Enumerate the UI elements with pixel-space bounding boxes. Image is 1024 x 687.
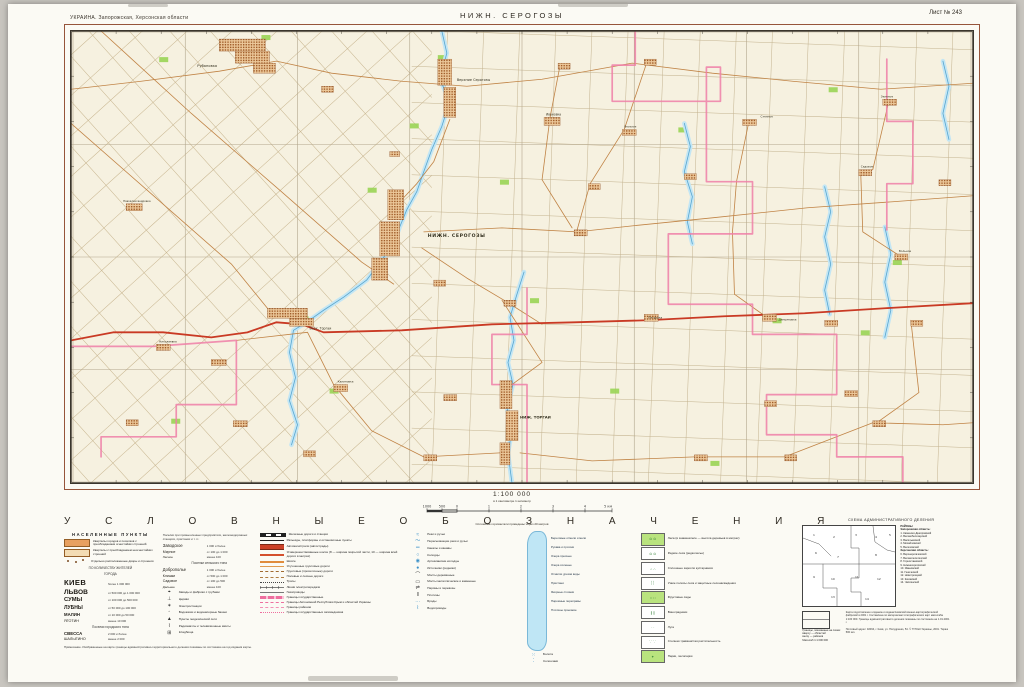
legend-name-sample: Лесноеменее 100	[163, 555, 256, 559]
legend-item: ⊥Церкви	[163, 597, 256, 602]
legend-symbol: ═	[411, 546, 424, 551]
legend-item-label: Виноградники	[668, 611, 799, 614]
svg-text:13: 13	[831, 595, 835, 599]
admin-scheme-map: 1234567891011121314	[802, 525, 896, 607]
legend-item: ✶Электростанции	[163, 604, 256, 609]
map-label: Новоалександровка	[123, 199, 151, 203]
legend-item: ◉Артезианские колодцы	[411, 559, 523, 564]
sheet-number: Лист № 243	[929, 10, 962, 16]
legend-item-label: Мосты металлические и каменные	[427, 580, 523, 583]
legend-subheader: Поселки городского типа	[64, 625, 157, 629]
legend-symbol: ▭	[411, 580, 424, 585]
legend-item-label: Реки и ручьи	[427, 533, 523, 536]
river-legend-label: Отметки урезов воды	[551, 573, 586, 576]
scale-bar-label: 2	[520, 504, 522, 508]
legend-swatch-blk-t	[64, 549, 90, 557]
legend-symbol: ⇌	[411, 586, 424, 591]
map-label: НИЖН. СЕРОГОЗЫ	[428, 233, 486, 239]
legend-item-label: Шоссе	[287, 560, 408, 563]
legend-item-label: Грунтовые (проселочные) дороги	[287, 570, 408, 573]
legend-item-label: Линии электропередачи	[287, 586, 408, 589]
legend-item-label: Кварталы с преобладанием неогнестойких с…	[93, 549, 157, 556]
river-legend-label: Озера пресные	[551, 555, 586, 558]
scale-bar-label: 0	[456, 504, 458, 508]
page-title: НИЖН. СЕРОГОЗЫ	[8, 11, 1016, 20]
legend-columns: НАСЕЛЕННЫЕ ПУНКТЫКварталы городов и посе…	[64, 516, 980, 666]
legend-name-sample: ЛЬВОВот 500 000 до 1 000 000	[64, 589, 157, 596]
svg-text:8: 8	[875, 553, 877, 557]
legend-swatch-rail2	[260, 540, 284, 541]
legend-item-label: Броды	[427, 600, 523, 603]
legend-item: ⌖Заводы и фабрики с трубами	[163, 590, 256, 595]
legend-item-label: Водопроводы	[427, 607, 523, 610]
legend-swatch-dots	[64, 558, 88, 564]
legend-swatch-bnd4	[260, 612, 284, 613]
legend-item-label: Степная травянистая растительность	[668, 640, 799, 643]
legend-item-label: Парки, лесопарки	[668, 655, 799, 658]
scale-bar-label: 1000	[423, 504, 432, 508]
map-label: Вольное	[899, 249, 912, 253]
svg-text:11: 11	[855, 575, 859, 579]
legend-item-label: Артезианские колодцы	[427, 560, 523, 563]
legend-item: Кварталы с преобладанием неогнестойких с…	[64, 549, 157, 557]
legend-symbol: ○	[411, 553, 424, 558]
svg-text:9: 9	[813, 575, 815, 579]
legend-symbol: ‖	[411, 593, 424, 598]
legend-item: Линии электропередачи	[260, 586, 408, 589]
legend-item-label: Усовершенствованные шоссе (8 — ширина по…	[287, 551, 408, 558]
scale-bar-label: 500	[439, 504, 445, 508]
legend-item-label: Редкие леса (редколесье)	[668, 552, 799, 555]
legend-item: ⌒Мосты деревянные	[411, 573, 523, 578]
river-sample	[527, 531, 547, 651]
legend-item-label: Каналы и канавы	[427, 547, 523, 550]
legend-symbol: ⁙	[527, 653, 540, 658]
svg-text:10: 10	[831, 577, 835, 581]
scan-artifact	[128, 4, 168, 7]
legend-item: ⸪ ⸪Степная травянистая растительность	[641, 636, 799, 649]
legend-symbol: ⋯	[411, 600, 424, 605]
legend-item: Границы государственных заповедников	[260, 611, 408, 614]
svg-text:12: 12	[877, 577, 881, 581]
scale-bar: 1000500012345 км	[407, 503, 617, 516]
map-scale: 1:100 000	[8, 491, 1016, 498]
legend-item: Грунтовые (проселочные) дороги	[260, 570, 408, 573]
legend-subheader: ГОРОДА	[64, 572, 157, 576]
map-label: Верх. Торгаи	[310, 326, 332, 330]
legend-name-sample: МАЛИНот 10 000 до 50 000	[64, 612, 157, 617]
legend-vegetation-box: ∙ ∙	[641, 621, 665, 634]
legend-item-label: Заводы и фабрики с трубами	[179, 591, 256, 594]
river-legend-label: Якорные стоянки	[551, 591, 586, 594]
legend-item-label: Границы государственные	[287, 596, 408, 599]
legend-item: ∴ ∴Сплошные заросли кустарников	[641, 562, 799, 575]
legend-swatch-rd-or-thin	[260, 566, 284, 567]
legend-swatch-bnd3	[260, 607, 284, 608]
scale-bar-label: 3	[552, 504, 554, 508]
svg-text:3: 3	[855, 533, 857, 537]
legend-item: Улучшенные грунтовые дороги	[260, 565, 408, 568]
legend-item: ▲Пункты геодезической сети	[163, 617, 256, 622]
svg-text:5: 5	[889, 533, 891, 537]
legend-item: ⊙ ⊙Леса (в знаменателе — высота деревьев…	[641, 533, 799, 546]
legend-name-sample: Заводское1 000 и более	[163, 543, 256, 548]
legend-symbol: ⌒	[411, 573, 424, 578]
legend-item: Усовершенствованные шоссе (8 — ширина по…	[260, 551, 408, 558]
map-sheet: УКРАИНА. Запорожская, Херсонская области…	[8, 4, 1016, 682]
legend-item-label: Железные дороги и станции	[289, 533, 408, 536]
legend-section-header: НАСЕЛЕННЫЕ ПУНКТЫ	[64, 532, 157, 537]
legend-item-label: Леса (в знаменателе — высота деревьев в …	[668, 537, 799, 540]
legend-item: ▭Мосты металлические и каменные	[411, 580, 523, 585]
legend-col-settlements: НАСЕЛЕННЫЕ ПУНКТЫКварталы городов и посе…	[64, 531, 256, 649]
legend-item: ○Колодцы	[411, 553, 523, 558]
legend-item-label: Солончаки	[543, 660, 637, 663]
map-label: Степное	[761, 114, 774, 118]
publication-note: Карта подготовлена к изданию и издана Ки…	[846, 611, 950, 642]
legend-item: 〜Пересыхающие реки и ручьи	[411, 539, 523, 544]
scale-bar-label: 4	[584, 504, 586, 508]
map-label: Рубановка	[197, 64, 217, 68]
legend-symbol: ✶	[163, 604, 176, 609]
legend-vegetation-box: ✦	[641, 650, 665, 663]
map-label: Петровка	[648, 315, 662, 319]
legend-item-label: Водокачки и водонапорные башни	[179, 611, 256, 614]
legend-symbol: ⊥	[163, 597, 176, 602]
legend-col-roads: Железные дороги и станцииРазъезды, платф…	[260, 531, 408, 616]
scanned-topo-map-page: { "header": { "region_note": "УКРАИНА. З…	[0, 0, 1024, 687]
legend-item: ⊙ ⊙Редкие леса (редколесье)	[641, 547, 799, 560]
legend-vegetation-box: ∴ ∴	[641, 562, 665, 575]
legend-name-sample: Клишкиот 500 до 1 000	[163, 574, 256, 578]
river-legend-label: Береговые отмели и мели	[551, 537, 586, 540]
river-legend-label: Рукава и протоки	[551, 546, 586, 549]
legend-item: ⇌Паромы и перевозы	[411, 586, 523, 591]
map-frame: РубановкаВерхние СерогозыНИЖН. СЕРОГОЗЫВ…	[64, 24, 980, 490]
legend-item-label: Улучшенные грунтовые дороги	[287, 565, 408, 568]
legend-name-sample: ШАЛЫГИНОменее 2 000	[64, 637, 157, 641]
legend-item-label: Разъезды, платформы и остановочные пункт…	[287, 539, 408, 542]
legend-name-sample: Доброполье1 000 и более	[163, 567, 256, 572]
scan-artifact	[308, 676, 398, 681]
map-label: Зеленое	[881, 94, 894, 98]
legend-swatch-rd-dash-thin	[260, 577, 284, 578]
map-label: Ивановка	[546, 112, 561, 116]
legend-swatch-bnd2	[260, 602, 284, 603]
legend-item-label: Границы государственных заповедников	[287, 611, 408, 614]
map-inner-frame: РубановкаВерхние СерогозыНИЖН. СЕРОГОЗЫВ…	[70, 30, 974, 484]
legend-item-label: Мосты деревянные	[427, 574, 523, 577]
legend-item-label: Плотины	[427, 594, 523, 597]
legend-item: ●Источники (родники)	[411, 566, 523, 571]
legend-item-label: Электростанции	[179, 605, 256, 608]
district-list-item: 14. Чаплинский	[900, 581, 931, 585]
legend-item: ┆┆Узкие полосы леса и защитные лесонасаж…	[641, 577, 799, 590]
legend-item: Границы районов	[260, 606, 408, 609]
legend-item-label: Радиомачты и телевизионные мачты	[179, 625, 256, 628]
map-label: Калиновка	[338, 380, 354, 384]
legend-item-label: Паромы и перевозы	[427, 587, 523, 590]
legend-item: Газопроводы	[260, 591, 408, 594]
admin-scheme-district-list: РАЙОНЫЗапорожская область:1. Каменско-Дн…	[900, 525, 931, 607]
legend-vegetation-box: ∷ ∷	[641, 591, 665, 604]
map-label: Верхние Серогозы	[457, 78, 491, 82]
legend-symbol: ◉	[411, 559, 424, 564]
legend-item: ⋯Броды	[411, 600, 523, 605]
legend-col-scheme: СХЕМА АДМИНИСТРАТИВНОГО ДЕЛЕНИЯ123456789…	[802, 518, 980, 642]
legend-swatch-power	[260, 586, 284, 589]
river-legend-label: Пристани	[551, 582, 586, 585]
scheme-boundary-sample	[802, 611, 830, 629]
legend-item: ∷ ∷Фруктовые сады	[641, 591, 799, 604]
legend-symbol: ▲	[163, 617, 176, 622]
legend-symbol: ◦	[163, 610, 176, 615]
legend-subheader: Поселки сельского типа	[163, 561, 256, 565]
legend: У С Л О В Н Ы Е О Б О З Н А Ч Е Н И Я НА…	[64, 516, 980, 666]
legend-swatch-bnd1	[260, 596, 284, 599]
legend-item-label: Сплошные заросли кустарников	[668, 567, 799, 570]
map-label: Николаевка	[159, 339, 177, 343]
legend-item: ≈Реки и ручьи	[411, 533, 523, 538]
legend-paragraph: Примечание. Изображенные на карте границ…	[64, 646, 256, 650]
legend-item: ‖Плотины	[411, 593, 523, 598]
legend-item: ∥ ∥Виноградники	[641, 606, 799, 619]
legend-item: ◦Водокачки и водонапорные башни	[163, 610, 256, 615]
legend-item-label: Кладбища	[179, 631, 256, 634]
legend-name-sample: ЯГОТИНменее 10 000	[64, 619, 157, 623]
svg-text:2: 2	[833, 535, 835, 539]
legend-name-sample: ЛУБНЫот 50 000 до 100 000	[64, 605, 157, 611]
legend-item-label: Пересыхающие реки и ручьи	[427, 540, 523, 543]
legend-title: У С Л О В Н Ы Е О Б О З Н А Ч Е Н И Я	[64, 516, 804, 527]
legend-item-label: Пункты геодезической сети	[179, 618, 256, 621]
legend-name-sample: СВЕССА2 000 и более	[64, 631, 157, 636]
legend-item: ∙ ∙Луга	[641, 621, 799, 634]
legend-item-label: Болота	[543, 653, 637, 656]
scale-bar-label: 1	[488, 504, 490, 508]
legend-item-label: Кварталы городов и поселков с преобладан…	[93, 540, 157, 547]
scan-artifact	[558, 2, 628, 7]
legend-item-label: Отдельно расположенные дворы и строения	[91, 560, 157, 563]
scale-bar-label: 5 км	[604, 504, 612, 508]
legend-item: Отдельно расположенные дворы и строения	[64, 558, 157, 564]
legend-swatch-rd-red2	[260, 544, 284, 550]
legend-swatch-rd-red	[260, 554, 284, 556]
legend-item-label: Границы районов	[287, 606, 408, 609]
map-label: Веселое	[624, 124, 636, 128]
legend-item: ⊞Кладбища	[163, 631, 256, 636]
legend-item: Тропы	[260, 580, 408, 583]
legend-item-label: Узкие полосы леса и защитные лесонасажде…	[668, 582, 799, 585]
svg-text:4: 4	[875, 535, 877, 539]
svg-text:14: 14	[865, 597, 869, 601]
topographic-map: РубановкаВерхние СерогозыНИЖН. СЕРОГОЗЫВ…	[71, 31, 973, 483]
legend-symbol: ⌇	[411, 606, 424, 611]
legend-item: Разъезды, платформы и остановочные пункт…	[260, 539, 408, 542]
legend-symbol: ⊞	[163, 631, 176, 636]
legend-item-label: Церкви	[179, 598, 256, 601]
legend-swatch-rd-dash	[260, 571, 284, 572]
legend-name-sample: Дальнееменее 100	[163, 585, 256, 589]
legend-symbol: 〜	[411, 539, 424, 544]
legend-symbol: ⁚	[527, 659, 540, 664]
legend-swatch-pipe	[260, 592, 284, 593]
legend-swatch-blk-o	[64, 539, 90, 547]
legend-name-sample: Мирноеот 100 до 1 000	[163, 550, 256, 554]
legend-paragraph: Поселки при промышленных предприятиях, ж…	[163, 534, 256, 542]
legend-item: Кварталы городов и поселков с преобладан…	[64, 539, 157, 547]
legend-item: ⁙Болота	[527, 653, 637, 658]
legend-name-sample: Садовоеот 100 до 500	[163, 579, 256, 583]
legend-vegetation-box: ⸪ ⸪	[641, 636, 665, 649]
legend-symbol: ≈	[411, 533, 424, 538]
legend-name-sample: КИЕВболее 1 000 000	[64, 578, 157, 587]
legend-item: ⌇Радиомачты и телевизионные мачты	[163, 624, 256, 629]
river-legend-label: Паромные переправы	[551, 600, 586, 603]
legend-item-label: Границы Автономной Республики Крым и обл…	[287, 601, 408, 604]
river-legend-label: Плотины проезжие	[551, 609, 586, 612]
legend-item-label: Газопроводы	[287, 591, 408, 594]
legend-swatch-rd-or	[260, 561, 284, 563]
legend-item-label: Тропы	[287, 580, 408, 583]
legend-item: Полевые и лесные дороги	[260, 575, 408, 578]
svg-text:1: 1	[813, 533, 815, 537]
legend-col-hydro-symbols: ≈Реки и ручьи〜Пересыхающие реки и ручьи═…	[411, 531, 523, 613]
svg-text:6: 6	[815, 551, 817, 555]
legend-item: Автомагистрали (автострады)	[260, 544, 408, 550]
legend-symbol: ●	[411, 566, 424, 571]
legend-item: Границы Автономной Республики Крым и обл…	[260, 601, 408, 604]
legend-swatch-rail	[260, 533, 286, 538]
legend-item-label: Колодцы	[427, 554, 523, 557]
map-label: Садовое	[861, 165, 874, 169]
map-label: НИЖ. ТОРГАИ	[520, 415, 551, 420]
legend-symbol: ⌇	[163, 624, 176, 629]
legend-symbol: ⌖	[163, 590, 176, 595]
legend-vegetation-box: ⊙ ⊙	[641, 533, 665, 546]
legend-item-label: Полевые и лесные дороги	[287, 575, 408, 578]
legend-item: Шоссе	[260, 560, 408, 563]
legend-swatch-trail	[260, 582, 284, 583]
legend-item-label: Луга	[668, 626, 799, 629]
legend-item: Железные дороги и станции	[260, 533, 408, 538]
legend-vegetation-box: ┆┆	[641, 577, 665, 590]
legend-item: ⌇Водопроводы	[411, 606, 523, 611]
legend-item: ═Каналы и канавы	[411, 546, 523, 551]
legend-item-label: Фруктовые сады	[668, 596, 799, 599]
legend-subheader: ПО КОЛИЧЕСТВУ ЖИТЕЛЕЙ	[64, 566, 157, 570]
svg-text:7: 7	[837, 555, 839, 559]
river-legend-label: Озера соленые	[551, 564, 586, 567]
legend-item: ✦Парки, лесопарки	[641, 650, 799, 663]
map-label: Демьяновка	[779, 317, 797, 321]
legend-item: Границы государственные	[260, 596, 408, 599]
legend-name-sample: СУМЫот 100 000 до 500 000	[64, 597, 157, 603]
legend-vegetation-box: ∥ ∥	[641, 606, 665, 619]
legend-vegetation-box: ⊙ ⊙	[641, 547, 665, 560]
legend-item-label: Источники (родники)	[427, 567, 523, 570]
legend-col-vegetation: ⊙ ⊙Леса (в знаменателе — высота деревьев…	[641, 531, 799, 665]
legend-col-river: Береговые отмели и мелиРукава и протокиО…	[527, 531, 637, 666]
legend-item-label: Автомагистрали (автострады)	[287, 545, 408, 548]
legend-item: ⁚Солончаки	[527, 659, 637, 664]
